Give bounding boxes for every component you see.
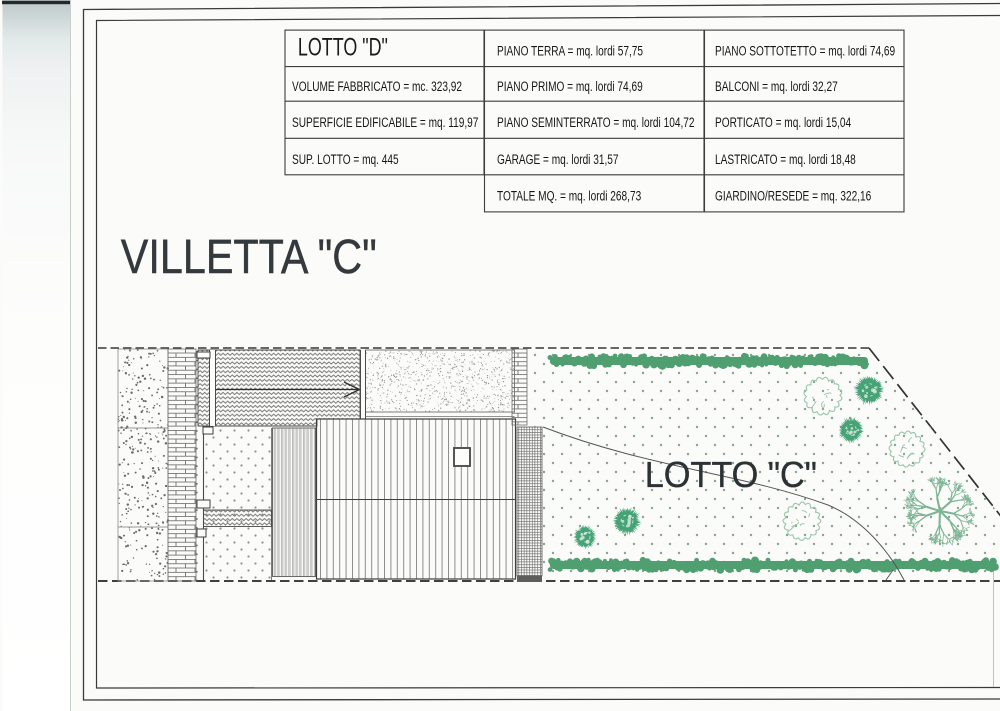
svg-text:PIANO SEMINTERRATO = mq. lordi: PIANO SEMINTERRATO = mq. lordi 104,72 bbox=[497, 115, 695, 130]
svg-text:GIARDINO/RESEDE = mq. 322,16: GIARDINO/RESEDE = mq. 322,16 bbox=[715, 189, 871, 204]
svg-text:VILLETTA "C": VILLETTA "C" bbox=[121, 231, 377, 284]
svg-text:SUP. LOTTO = mq. 445: SUP. LOTTO = mq. 445 bbox=[292, 152, 399, 167]
svg-text:SUPERFICIE EDIFICABILE = mq. 1: SUPERFICIE EDIFICABILE = mq. 119,97 bbox=[292, 115, 478, 130]
svg-text:LOTTO "D": LOTTO "D" bbox=[298, 35, 388, 62]
svg-text:GARAGE = mq. lordi 31,57: GARAGE = mq. lordi 31,57 bbox=[497, 152, 619, 167]
svg-text:LASTRICATO = mq. lordi 18,48: LASTRICATO = mq. lordi 18,48 bbox=[715, 152, 856, 167]
svg-text:PIANO TERRA = mq. lordi 57,75: PIANO TERRA = mq. lordi 57,75 bbox=[497, 44, 643, 59]
svg-text:PIANO SOTTOTETTO = mq. lordi 7: PIANO SOTTOTETTO = mq. lordi 74,69 bbox=[715, 44, 895, 59]
svg-text:TOTALE MQ. = mq. lordi 268,73: TOTALE MQ. = mq. lordi 268,73 bbox=[497, 189, 641, 204]
svg-text:VOLUME FABBRICATO = mc. 323,92: VOLUME FABBRICATO = mc. 323,92 bbox=[292, 79, 462, 94]
svg-text:BALCONI = mq. lordi 32,27: BALCONI = mq. lordi 32,27 bbox=[715, 79, 838, 94]
svg-text:LOTTO "C": LOTTO "C" bbox=[645, 454, 817, 495]
svg-text:PORTICATO = mq. lordi 15,04: PORTICATO = mq. lordi 15,04 bbox=[715, 115, 851, 130]
svg-text:PIANO PRIMO = mq. lordi 74,69: PIANO PRIMO = mq. lordi 74,69 bbox=[497, 79, 643, 94]
